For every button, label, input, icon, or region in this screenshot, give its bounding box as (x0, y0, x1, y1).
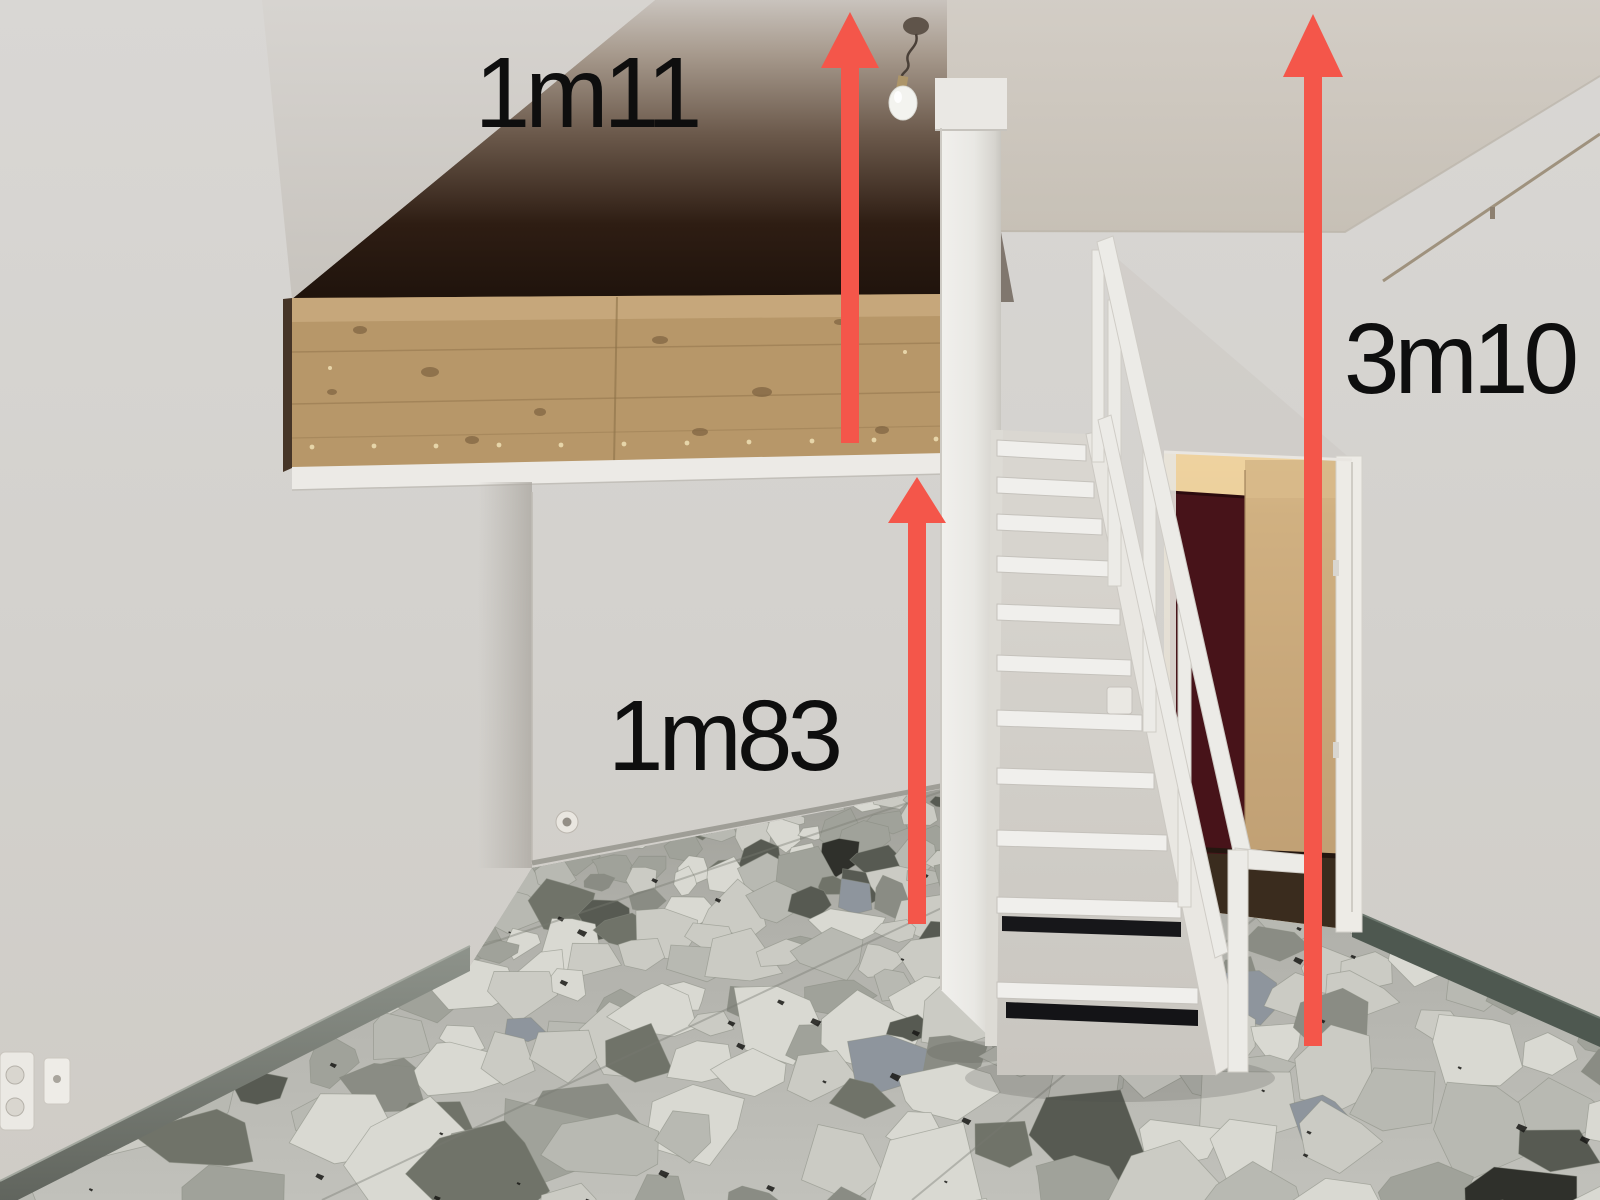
railing-newel (1228, 850, 1248, 1072)
terrazzo-chip (1433, 1015, 1523, 1086)
door-frame-right (1336, 456, 1362, 932)
ceiling-rose (903, 17, 929, 35)
annotated-apartment-photo: 1m11 1m83 3m10 (0, 0, 1600, 1200)
door-hinge (1333, 560, 1339, 576)
mezzanine-edge-gap (283, 298, 292, 472)
door-hinge (1333, 742, 1339, 758)
socket-hole (6, 1066, 24, 1084)
measure-label-loft-headroom: 1m11 (475, 37, 698, 149)
wall-socket-double (0, 1052, 34, 1130)
post-cap (935, 78, 1007, 130)
wall-plate-hole (53, 1075, 61, 1083)
terrazzo-chip (838, 879, 872, 915)
curtain-rod-bracket (1490, 207, 1495, 219)
socket-center (563, 818, 572, 827)
under-mezzanine-corner-shade (478, 482, 532, 868)
socket-hole (6, 1098, 24, 1116)
bulb-highlight (894, 91, 902, 103)
light-switch (1107, 687, 1132, 714)
light-bulb (889, 86, 917, 120)
measure-label-ceiling-height: 3m10 (1344, 303, 1576, 415)
measure-label-under-loft: 1m83 (608, 680, 840, 792)
